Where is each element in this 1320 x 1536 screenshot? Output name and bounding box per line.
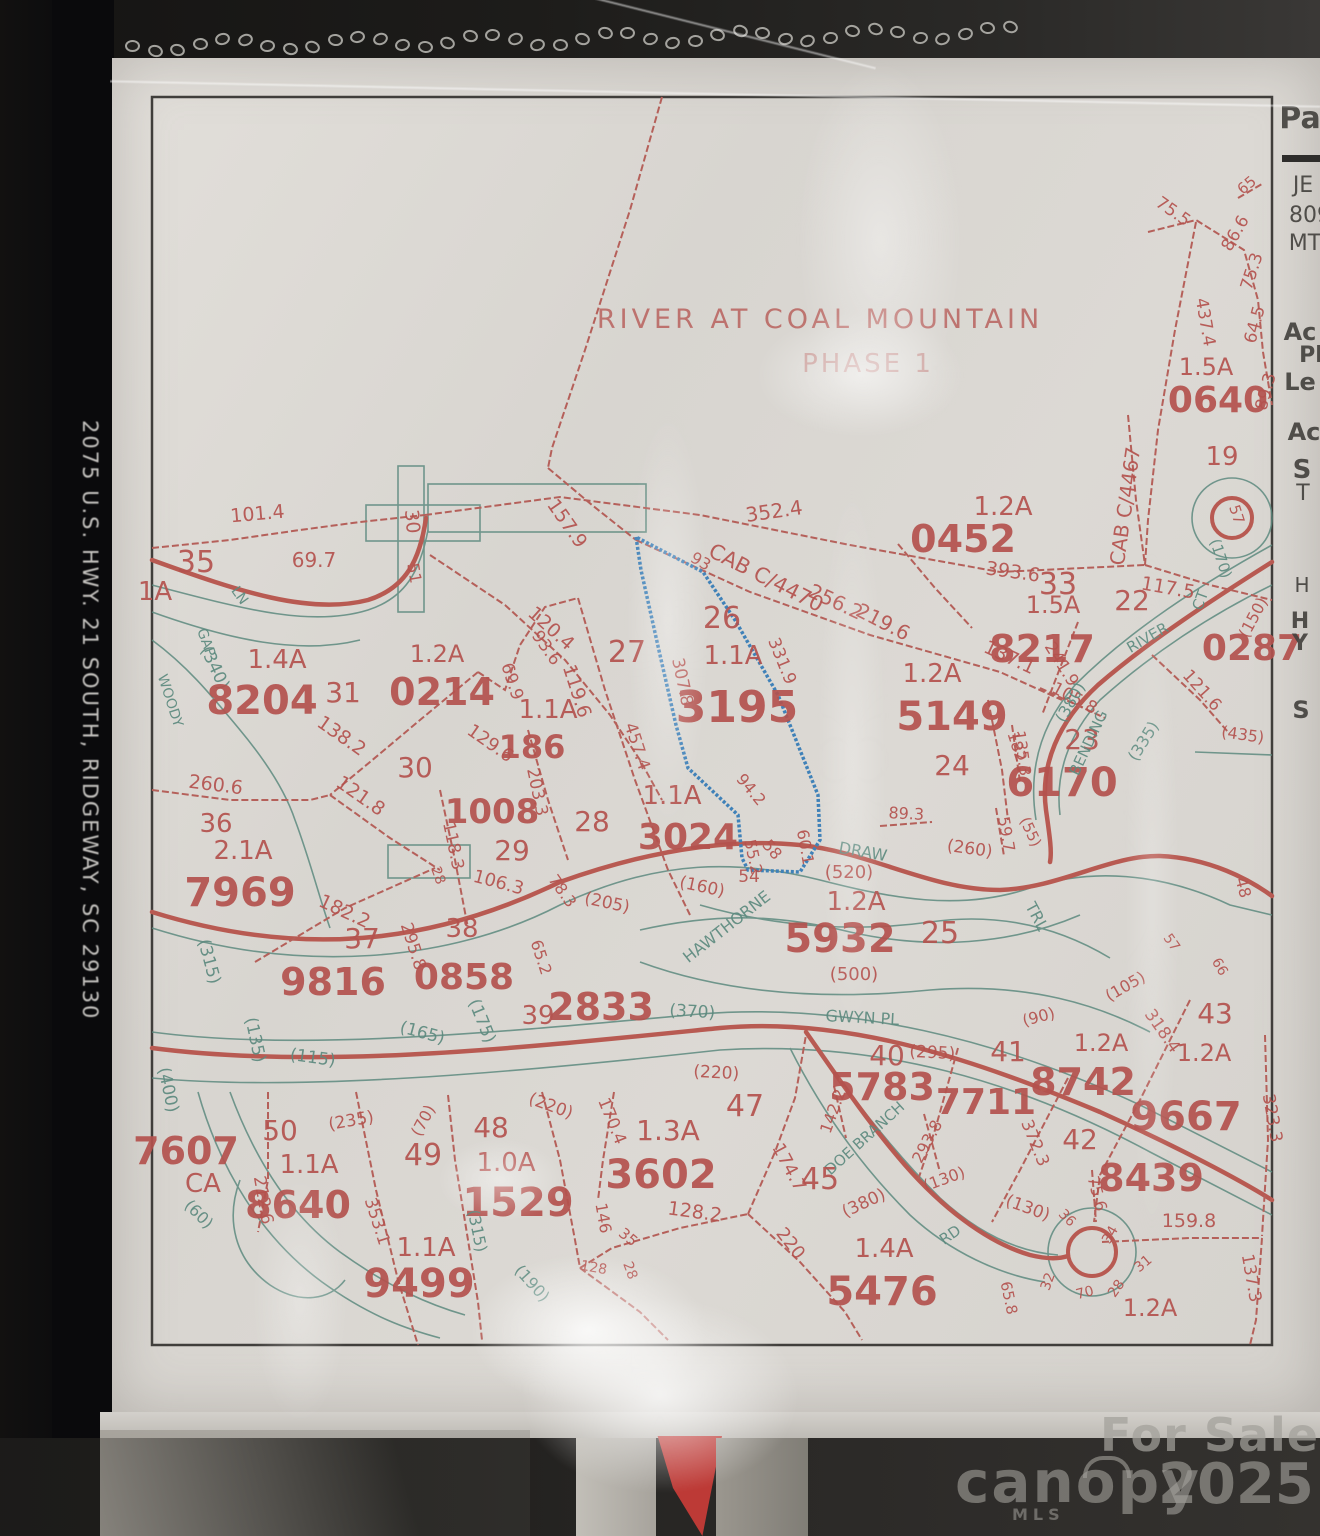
map-label: 1.4A [854, 1234, 913, 1264]
map-label: WOODY [154, 672, 186, 729]
perforation-hole [327, 33, 344, 47]
map-label: (220) [526, 1089, 576, 1123]
map-label: 293.8 [908, 1117, 946, 1166]
map-label: 2.1A [213, 836, 272, 866]
map-label: Ac [1288, 418, 1320, 446]
map-label: 31 [325, 676, 361, 709]
perforation-hole [933, 31, 951, 47]
map-label: 1.1A [518, 695, 577, 725]
map-label: (175) [464, 996, 500, 1046]
map-label: 146 [591, 1201, 615, 1234]
map-label: 128 [579, 1258, 608, 1278]
map-label: 0858 [414, 957, 514, 998]
map-label: 27 [608, 635, 646, 670]
sign-address-text: 2075 U.S. HWY. 21 SOUTH, RIDGEWAY, SC 29… [62, 420, 102, 1180]
map-label: 48 [1232, 875, 1256, 900]
map-label: 9667 [1130, 1094, 1241, 1140]
map-label: (115) [289, 1045, 337, 1071]
map-label: 5149 [896, 694, 1007, 740]
perforation-hole [146, 43, 164, 59]
map-label: 64.5 [1241, 304, 1270, 346]
map-label: RD [936, 1221, 964, 1248]
map-label: 47 [726, 1089, 764, 1124]
map-label: 8204 [206, 678, 317, 724]
map-label: 42 [1062, 1123, 1098, 1156]
map-label: 29 [494, 834, 530, 867]
map-label: 41 [990, 1035, 1026, 1068]
map-label: CAB C/4467 [1105, 445, 1145, 567]
perforation-hole [236, 32, 254, 48]
map-label: 70 [1074, 1283, 1095, 1303]
map-label: 32 [1038, 1271, 1059, 1293]
perforation-hole [303, 39, 321, 55]
map-label: 0287 [1202, 628, 1302, 669]
map-label: RIVER AT COAL MOUNTAIN [597, 304, 1043, 335]
map-label: 19 [1205, 442, 1238, 472]
map-label: 8640 [245, 1183, 351, 1227]
map-label: Ac [1284, 318, 1317, 346]
map-label: 352.4 [744, 495, 804, 527]
map-label: 9816 [280, 960, 386, 1004]
perforation-hole [192, 38, 208, 51]
perforation-hole [259, 39, 275, 52]
perforation-hole [169, 42, 187, 58]
map-label: 1.1A [642, 781, 701, 811]
map-label: 220 [771, 1224, 809, 1264]
map-label: 1.0A [476, 1148, 535, 1178]
perforation-hole [125, 40, 140, 52]
map-label: 2833 [548, 985, 654, 1029]
map-label: 372.3 [1016, 1117, 1053, 1170]
map-label: 5932 [784, 916, 895, 962]
map-label: 60.1 [793, 828, 818, 866]
panel-divider-bar [1282, 155, 1320, 162]
map-label: 34 [1099, 1223, 1122, 1247]
map-label: 86.6 [1218, 212, 1254, 255]
map-label: 1.2A [902, 659, 961, 689]
map-label: TRL [1021, 898, 1052, 934]
perforation-hole [552, 38, 568, 51]
map-label: 121.8 [332, 771, 389, 820]
map-label: 8439 [1098, 1156, 1204, 1200]
map-label: 51 [403, 561, 425, 584]
map-label: 101.4 [229, 501, 285, 528]
map-label: GWYN PL [825, 1006, 900, 1029]
map-label: 106.3 [471, 866, 526, 900]
map-label: (90) [1020, 1003, 1057, 1030]
map-label: CA [185, 1169, 221, 1199]
map-label: 1.3A [636, 1114, 700, 1147]
plat-map-drawing: RIVER AT COAL MOUNTAINPHASE 1101.4351A30… [0, 0, 1320, 1536]
map-label: 65 [1234, 172, 1260, 198]
map-label: 170.4 [593, 1095, 630, 1148]
perforation-hole [281, 42, 298, 57]
map-label: 1.2A [1074, 1029, 1129, 1057]
map-label: (295) [909, 1042, 956, 1064]
perforation-hole [461, 29, 478, 44]
photo-of-plat-map: RIVER AT COAL MOUNTAINPHASE 1101.4351A30… [0, 0, 1320, 1536]
perforation-hole [687, 35, 703, 48]
map-label: Y [1291, 631, 1309, 656]
map-label: 36 [1055, 1206, 1079, 1230]
perforation-hole [573, 31, 591, 47]
map-label: 1.5A [1026, 591, 1081, 619]
map-label: 48 [473, 1111, 509, 1144]
map-label: 121.6 [1178, 666, 1225, 716]
map-label: (520) [825, 862, 873, 883]
map-label: (335) [1124, 718, 1163, 765]
map-label: 5476 [826, 1269, 937, 1315]
perforation-hole [664, 35, 682, 51]
map-labels-layer: RIVER AT COAL MOUNTAINPHASE 1101.4351A30… [133, 101, 1320, 1322]
map-label: 28 [574, 805, 610, 838]
map-label: 157.9 [542, 495, 591, 552]
map-label: 7711 [936, 1082, 1036, 1123]
perforation-hole [596, 25, 614, 41]
map-label: S [1292, 696, 1309, 724]
map-label: (55) [1016, 814, 1045, 850]
map-label: (220) [693, 1062, 740, 1084]
map-label: 24 [934, 749, 970, 782]
perforation-hole [956, 26, 973, 41]
map-label: HAWTHORNE [679, 887, 774, 967]
map-label: 36 [199, 809, 232, 839]
map-label: 323.3 [1258, 1092, 1286, 1143]
map-label: 1.1A [703, 641, 762, 671]
map-label: (235) [327, 1107, 375, 1135]
map-label: 75.3 [1237, 250, 1268, 292]
perforation-hole [438, 35, 456, 51]
map-label: 1.1A [279, 1150, 338, 1180]
map-label: 30 [400, 508, 424, 534]
map-label: 3024 [638, 817, 738, 858]
map-label: 94.2 [732, 770, 769, 810]
perforation-hole [641, 31, 659, 47]
map-label: 1.4A [247, 645, 306, 675]
map-label: 7607 [133, 1129, 239, 1173]
map-label: 7969 [184, 870, 295, 916]
perforation-hole [866, 20, 884, 36]
map-label: (370) [669, 1001, 716, 1023]
map-label: Pl [1299, 343, 1320, 368]
map-label: H [1294, 573, 1309, 597]
perforation-hole [506, 31, 524, 47]
perforation-hole [889, 25, 906, 40]
map-label: (315) [193, 937, 224, 986]
map-label: 1.1A [396, 1233, 455, 1263]
map-label: (60) [181, 1196, 218, 1233]
map-label: 28 [427, 865, 448, 887]
map-label: 66 [1208, 955, 1231, 979]
map-label: 50 [262, 1114, 298, 1147]
map-label: (500) [830, 964, 878, 985]
map-label: (400) [153, 1066, 182, 1115]
map-label: 186 [499, 728, 566, 766]
map-label: (205) [583, 889, 632, 918]
map-label: PHASE 1 [802, 349, 934, 379]
map-label: 393.6 [984, 557, 1041, 586]
perforation-hole [417, 40, 434, 54]
map-label: 65.2 [527, 937, 556, 977]
map-label: 43 [1197, 997, 1233, 1030]
map-label: 1A [138, 577, 173, 607]
map-label: 59.7 [994, 815, 1019, 853]
map-label: T [1295, 481, 1310, 506]
map-label: 1.2A [1177, 1039, 1232, 1067]
map-label: 65.8 [997, 1280, 1022, 1316]
perforation-hole [484, 28, 500, 41]
map-label: 26 [703, 601, 741, 636]
perforation-hole [529, 37, 547, 52]
perforation-hole [822, 31, 839, 45]
perforation-hole [844, 24, 861, 39]
map-label: 49 [404, 1138, 442, 1173]
map-label: 138.2 [313, 711, 370, 760]
map-label: 28 [619, 1260, 640, 1282]
map-label: 89.3 [1252, 371, 1281, 413]
map-label: 3602 [605, 1152, 716, 1198]
map-label: MT [1289, 231, 1320, 256]
map-label: (190) [511, 1261, 554, 1306]
map-label: 1.5A [1179, 353, 1234, 381]
map-label: (435) [1220, 722, 1265, 747]
map-label: (165) [398, 1018, 447, 1049]
perforation-hole [371, 31, 389, 47]
map-label: 37 [344, 922, 380, 955]
map-label: (380) [839, 1185, 889, 1222]
map-label: (105) [1102, 967, 1149, 1005]
map-label: 353.1 [360, 1195, 394, 1247]
map-label: 0452 [910, 517, 1016, 561]
map-label: 38 [445, 914, 478, 944]
perforation-hole [912, 31, 929, 45]
map-label: (70) [407, 1101, 439, 1139]
map-label: (130) [1003, 1191, 1053, 1225]
map-label: 8217 [989, 627, 1095, 671]
map-label: 30 [397, 751, 433, 784]
perforation-hole [214, 31, 232, 47]
map-label: 437.4 [1191, 296, 1219, 347]
perforation-hole [979, 21, 995, 34]
perforation-hole [620, 27, 635, 39]
watermark-mls: MLS [1012, 1505, 1065, 1524]
map-label: 57 [1225, 503, 1248, 527]
map-label: 1.2A [1123, 1294, 1178, 1322]
map-label: 1.2A [410, 640, 465, 668]
map-label: 35 [177, 545, 215, 580]
map-label: 0214 [389, 670, 495, 714]
map-label: 9499 [363, 1261, 474, 1307]
perforation-hole [1001, 19, 1019, 35]
map-label: 22 [1114, 584, 1150, 617]
watermark-year: 2025 [1158, 1452, 1314, 1517]
perforation-hole [349, 29, 366, 44]
map-label: (160) [678, 873, 727, 902]
perforation-hole [394, 38, 411, 53]
map-label: Le [1284, 368, 1316, 396]
map-label: (170) [1206, 536, 1236, 580]
map-label: JE [1291, 173, 1313, 198]
map-label: 69.7 [292, 548, 337, 572]
map-label: (130) [921, 1163, 968, 1196]
map-label: 1.2A [826, 887, 885, 917]
map-label: 89.3 [888, 803, 925, 824]
map-label: 25 [921, 916, 959, 951]
map-label: 128.2 [666, 1197, 723, 1226]
map-label: 159.8 [1162, 1210, 1216, 1232]
map-label: (260) [946, 836, 994, 862]
map-label: 57 [1160, 931, 1183, 955]
map-label: 809 [1289, 203, 1320, 228]
map-label: 8742 [1030, 1060, 1136, 1104]
